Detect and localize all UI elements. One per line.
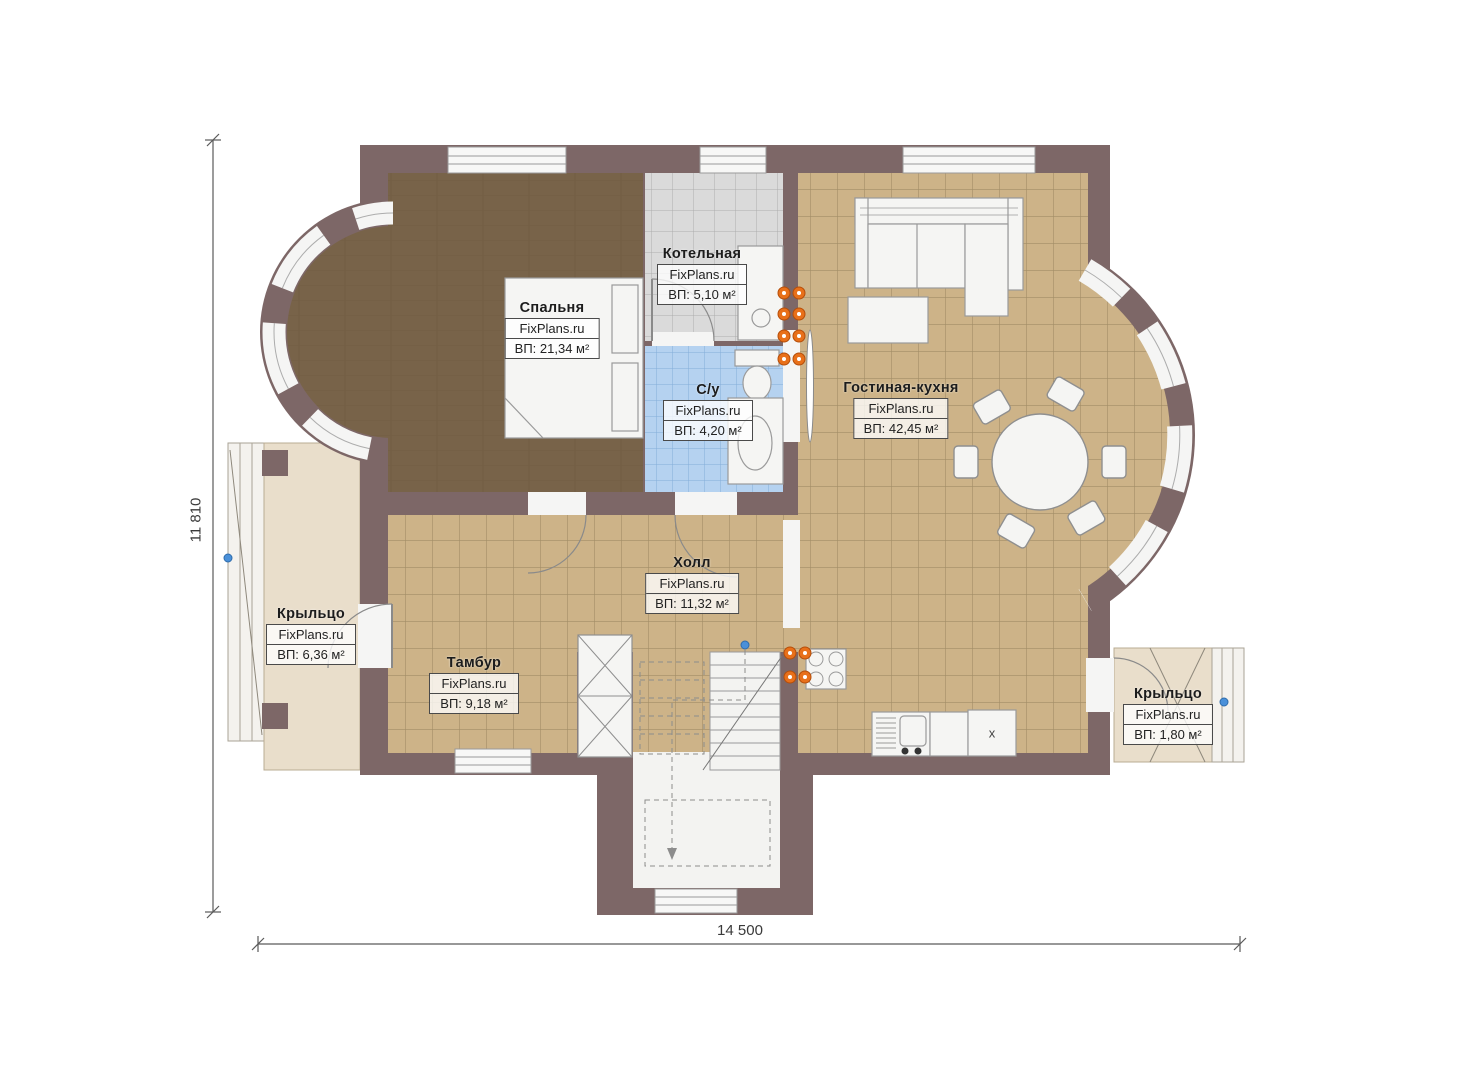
- room-area: ВП: 21,34 м²: [506, 339, 599, 358]
- stove: [806, 649, 846, 689]
- room-name: Холл: [645, 555, 739, 571]
- room-brand: FixPlans.ru: [506, 319, 599, 339]
- room-brand: FixPlans.ru: [646, 574, 738, 594]
- room-area: ВП: 1,80 м²: [1124, 725, 1212, 744]
- room-brand: FixPlans.ru: [658, 265, 746, 285]
- room-label-living: Гостиная-кухня FixPlans.ru ВП: 42,45 м²: [843, 380, 958, 439]
- room-label-bedroom: Спальня FixPlans.ru ВП: 21,34 м²: [505, 300, 600, 359]
- dimension-width-label: 14 500: [717, 922, 763, 939]
- toilet-tank: [735, 350, 779, 366]
- room-name: С/у: [663, 382, 753, 398]
- room-area: ВП: 11,32 м²: [646, 594, 738, 613]
- room-area: ВП: 6,36 м²: [267, 645, 355, 664]
- room-name: Тамбур: [429, 655, 519, 671]
- floor-plan-drawing: [0, 0, 1474, 1080]
- wardrobe: [578, 635, 632, 757]
- room-brand: FixPlans.ru: [430, 674, 518, 694]
- room-name: Крыльцо: [266, 606, 356, 622]
- kitchen-unit-mark: x: [989, 726, 996, 741]
- room-brand: FixPlans.ru: [855, 399, 948, 419]
- room-area: ВП: 4,20 м²: [664, 421, 752, 440]
- room-name: Крыльцо: [1123, 686, 1213, 702]
- table-top: [992, 414, 1088, 510]
- floor-plan-page: Спальня FixPlans.ru ВП: 21,34 м² Котельн…: [0, 0, 1474, 1080]
- room-label-wc: С/у FixPlans.ru ВП: 4,20 м²: [663, 382, 753, 441]
- room-label-boiler: Котельная FixPlans.ru ВП: 5,10 м²: [657, 246, 747, 305]
- room-label-porch-left: Крыльцо FixPlans.ru ВП: 6,36 м²: [266, 606, 356, 665]
- room-label-porch-right: Крыльцо FixPlans.ru ВП: 1,80 м²: [1123, 686, 1213, 745]
- room-label-tambour: Тамбур FixPlans.ru ВП: 9,18 м²: [429, 655, 519, 714]
- room-name: Спальня: [505, 300, 600, 316]
- hall-under-stair-floor: [633, 652, 710, 752]
- coffee-table: [848, 297, 928, 343]
- room-brand: FixPlans.ru: [1124, 705, 1212, 725]
- room-brand: FixPlans.ru: [267, 625, 355, 645]
- tambour-floor: [388, 515, 577, 753]
- room-area: ВП: 42,45 м²: [855, 419, 948, 438]
- room-area: ВП: 5,10 м²: [658, 285, 746, 304]
- room-brand: FixPlans.ru: [664, 401, 752, 421]
- room-area: ВП: 9,18 м²: [430, 694, 518, 713]
- room-name: Котельная: [657, 246, 747, 262]
- room-name: Гостиная-кухня: [843, 380, 958, 396]
- dimension-height-label: 11 810: [188, 498, 205, 543]
- sink-unit: [872, 712, 930, 756]
- counter: [930, 712, 968, 756]
- room-label-hall: Холл FixPlans.ru ВП: 11,32 м²: [645, 555, 739, 614]
